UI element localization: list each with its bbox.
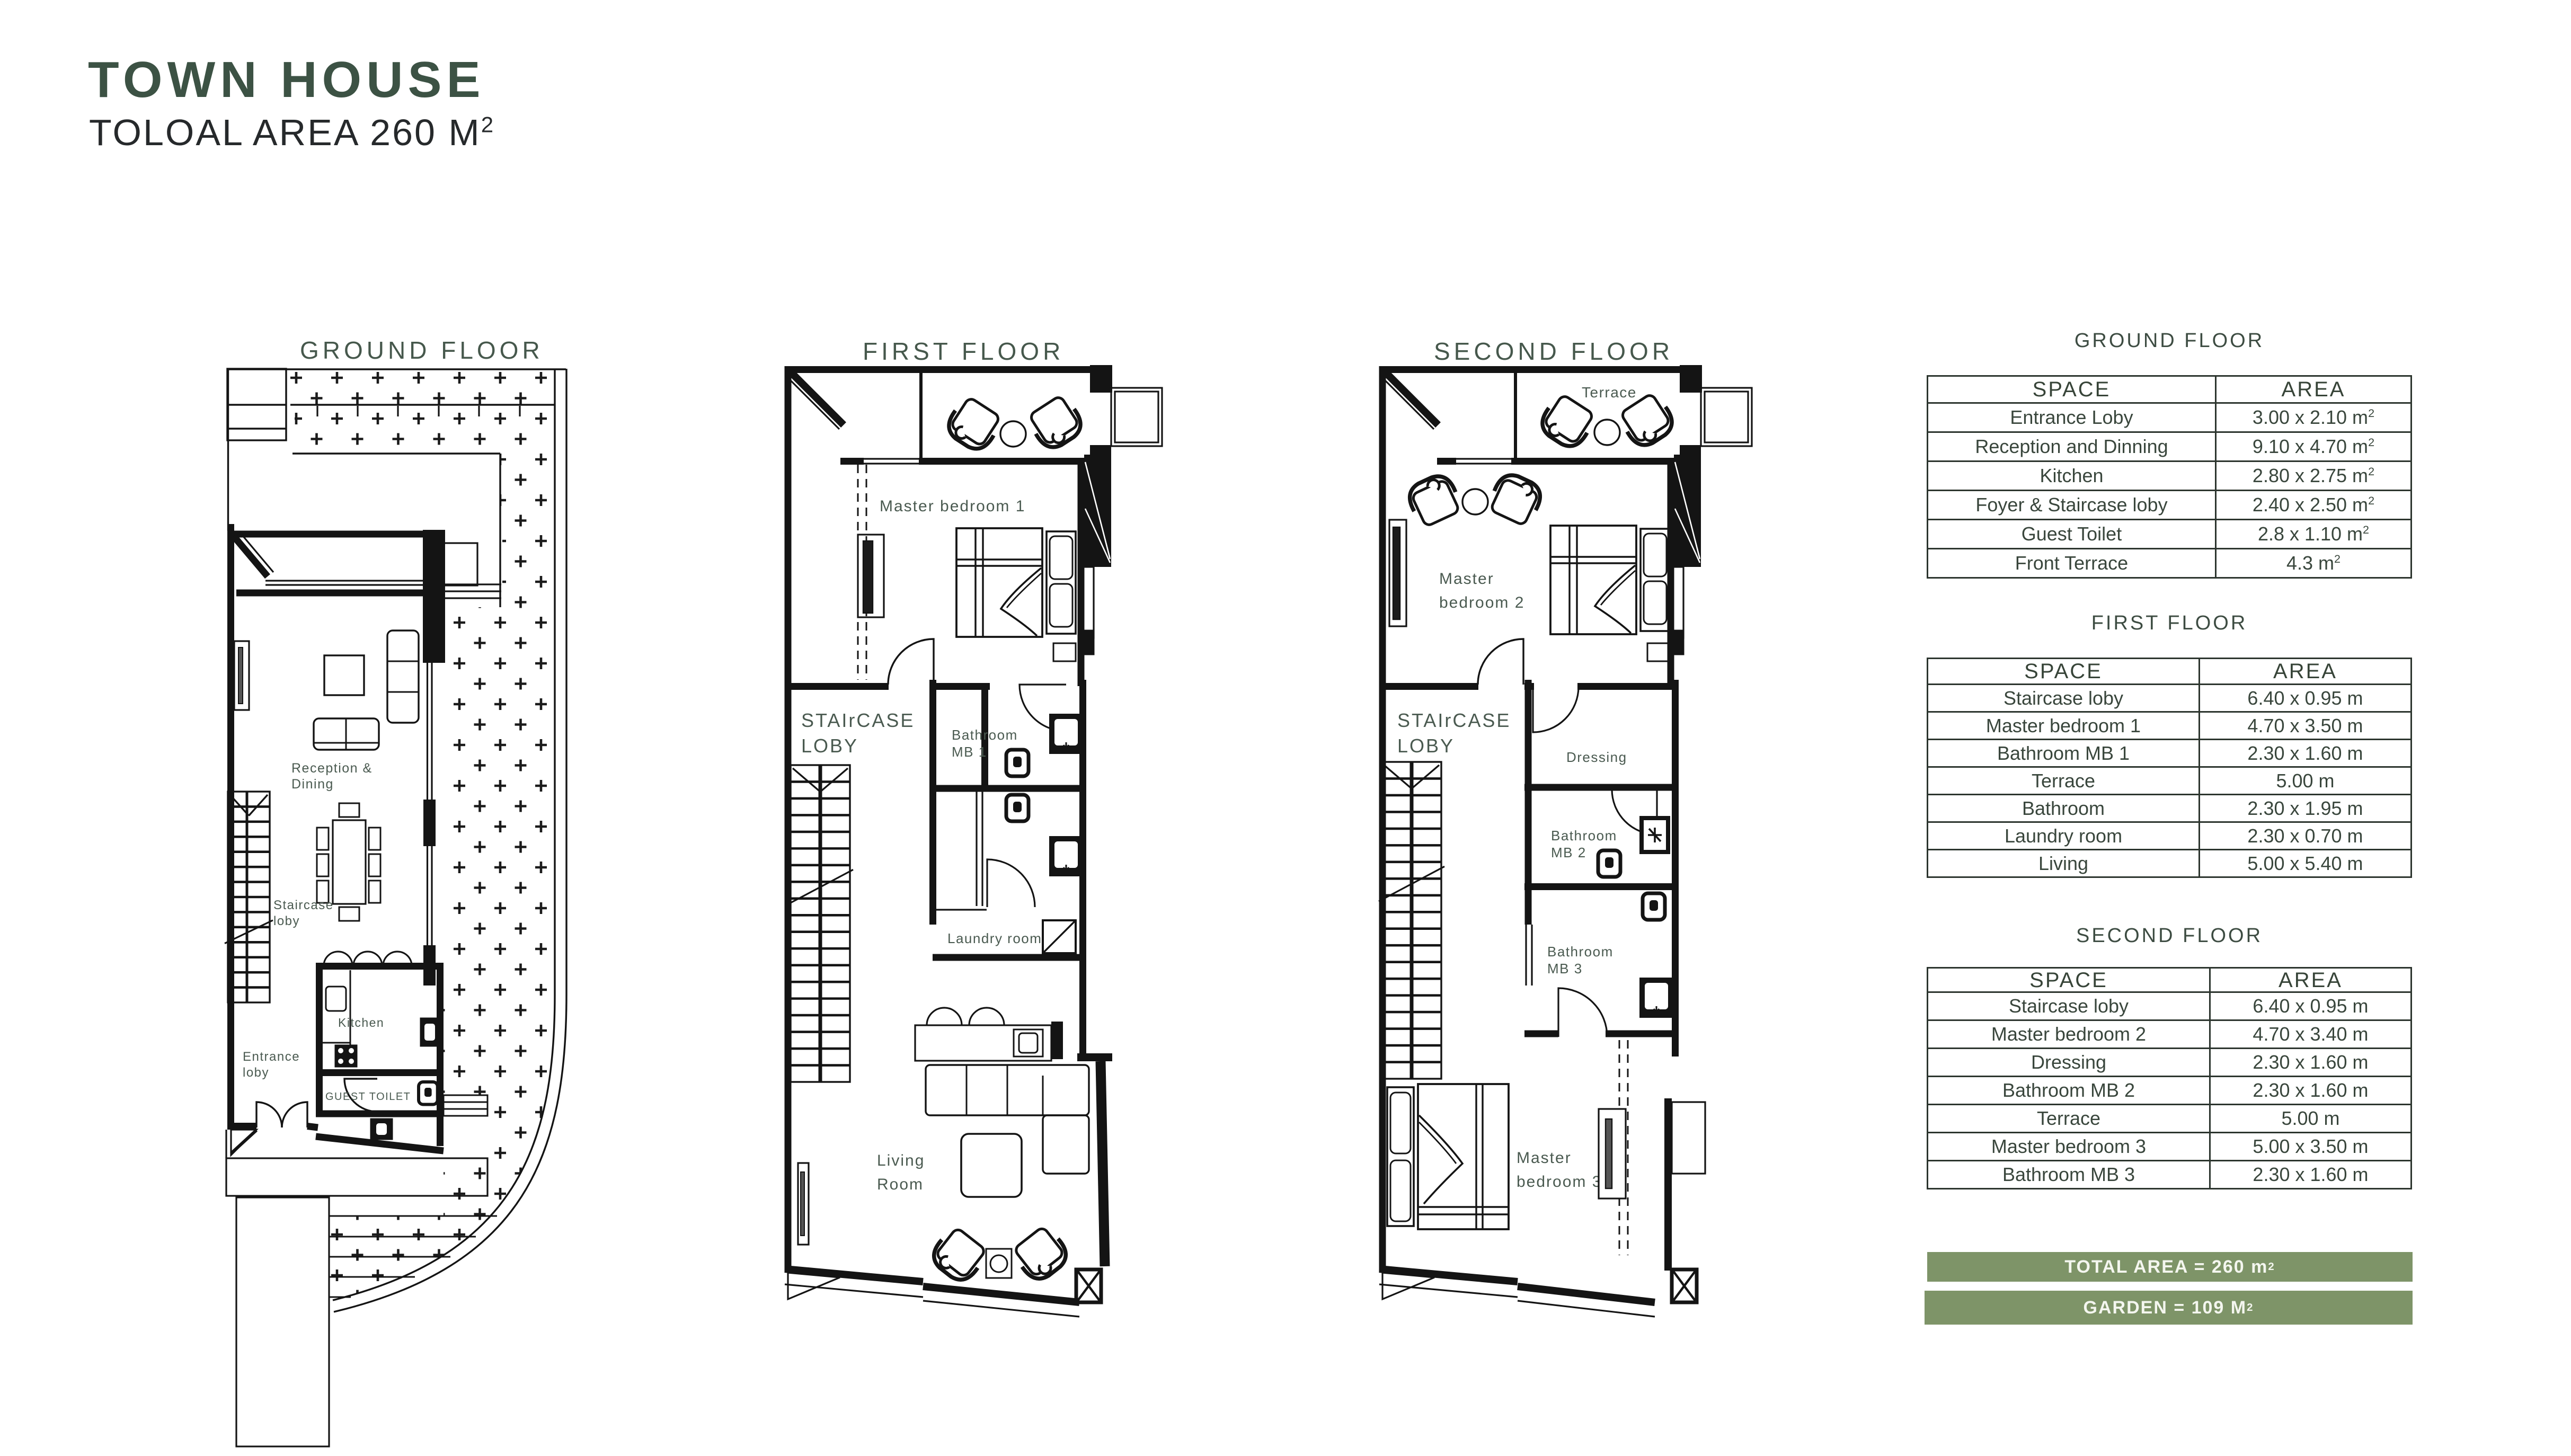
svg-text:STAIrCASE: STAIrCASE bbox=[1397, 709, 1511, 731]
svg-text:bedroom 2: bedroom 2 bbox=[1439, 594, 1524, 611]
svg-text:Bathroom: Bathroom bbox=[1551, 828, 1617, 844]
svg-text:loby: loby bbox=[273, 914, 300, 928]
svg-text:loby: loby bbox=[243, 1066, 269, 1080]
svg-text:MB 2: MB 2 bbox=[1551, 845, 1586, 860]
svg-text:Reception &: Reception & bbox=[291, 761, 373, 776]
svg-text:MB 1: MB 1 bbox=[952, 744, 987, 760]
svg-text:Master bedroom 1: Master bedroom 1 bbox=[880, 498, 1025, 515]
svg-text:Room: Room bbox=[877, 1176, 924, 1193]
svg-text:Living: Living bbox=[877, 1152, 925, 1169]
svg-text:Master: Master bbox=[1517, 1149, 1572, 1167]
svg-text:Kitchen: Kitchen bbox=[338, 1016, 384, 1029]
svg-text:bedroom 3: bedroom 3 bbox=[1517, 1173, 1602, 1191]
svg-text:LOBY: LOBY bbox=[1397, 735, 1455, 757]
svg-text:Dressing: Dressing bbox=[1566, 749, 1627, 765]
svg-text:Staircase: Staircase bbox=[273, 898, 334, 912]
svg-text:STAIrCASE: STAIrCASE bbox=[801, 709, 915, 731]
svg-text:Terrace: Terrace bbox=[1582, 384, 1637, 401]
svg-text:LOBY: LOBY bbox=[801, 735, 858, 757]
svg-text:Laundry room: Laundry room bbox=[947, 930, 1042, 946]
svg-text:Master: Master bbox=[1439, 570, 1494, 588]
svg-text:Bathroom: Bathroom bbox=[952, 727, 1018, 743]
svg-text:MB 3: MB 3 bbox=[1547, 961, 1583, 976]
svg-text:Bathroom: Bathroom bbox=[1547, 944, 1613, 960]
svg-text:GUEST TOILET: GUEST TOILET bbox=[325, 1091, 411, 1103]
svg-text:Entrance: Entrance bbox=[243, 1050, 300, 1064]
svg-text:Dining: Dining bbox=[291, 777, 334, 792]
